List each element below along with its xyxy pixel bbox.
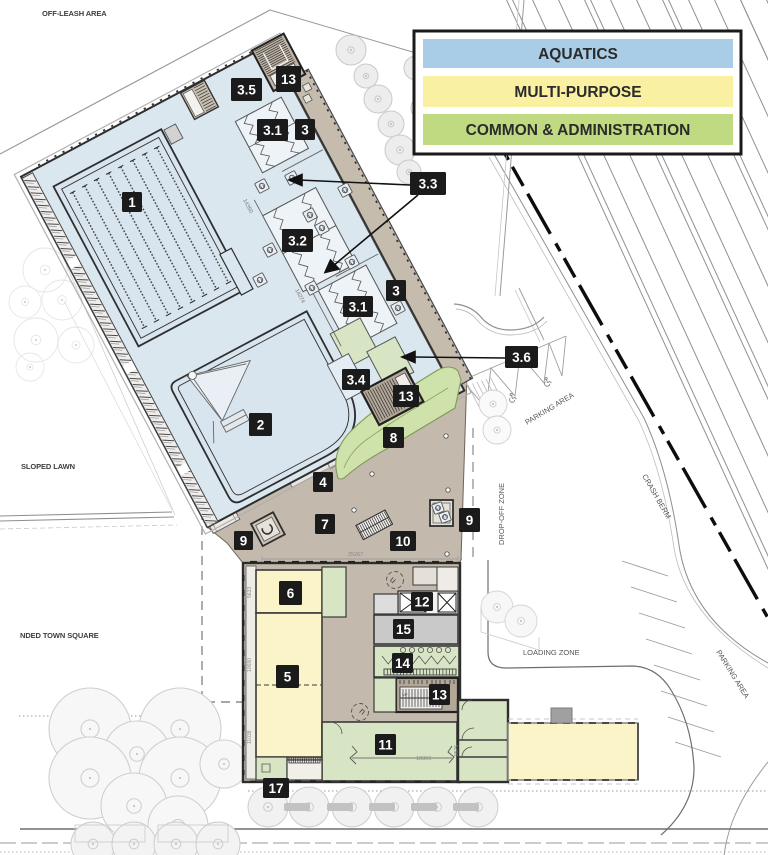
- svg-text:5: 5: [284, 669, 292, 684]
- svg-text:9: 9: [466, 513, 474, 528]
- svg-text:AQUATICS: AQUATICS: [538, 46, 618, 63]
- svg-text:8: 8: [390, 430, 398, 445]
- svg-text:1: 1: [128, 195, 136, 210]
- svg-text:12: 12: [414, 594, 429, 609]
- svg-text:17: 17: [268, 781, 283, 796]
- svg-text:10680: 10680: [247, 658, 253, 672]
- svg-text:14: 14: [395, 656, 411, 671]
- svg-text:13: 13: [398, 389, 414, 404]
- svg-text:OFF-LEASH AREA: OFF-LEASH AREA: [42, 9, 107, 18]
- svg-text:13: 13: [281, 72, 297, 87]
- svg-text:LOADING ZONE: LOADING ZONE: [523, 648, 580, 657]
- svg-text:15: 15: [396, 622, 412, 637]
- svg-text:MULTI-PURPOSE: MULTI-PURPOSE: [514, 84, 641, 101]
- svg-text:3.6: 3.6: [512, 350, 531, 365]
- svg-text:3: 3: [392, 283, 400, 298]
- svg-text:3: 3: [301, 122, 309, 137]
- svg-text:3.3: 3.3: [419, 176, 438, 191]
- svg-text:25267: 25267: [348, 552, 363, 558]
- svg-text:11: 11: [378, 737, 393, 752]
- svg-text:UP: UP: [402, 692, 408, 697]
- svg-text:DROP-OFF ZONE: DROP-OFF ZONE: [497, 483, 506, 545]
- svg-text:3.1: 3.1: [349, 299, 368, 314]
- svg-text:11038: 11038: [247, 730, 253, 744]
- svg-text:SLOPED LAWN: SLOPED LAWN: [21, 462, 75, 471]
- svg-text:13: 13: [432, 687, 448, 702]
- svg-text:9575: 9575: [454, 745, 460, 756]
- svg-text:3.4: 3.4: [347, 372, 366, 387]
- svg-text:3.5: 3.5: [237, 82, 256, 97]
- svg-text:5633: 5633: [247, 587, 253, 598]
- svg-text:10366: 10366: [416, 756, 431, 762]
- svg-text:6: 6: [287, 586, 295, 601]
- svg-text:COMMON & ADMINISTRATION: COMMON & ADMINISTRATION: [466, 122, 691, 139]
- svg-text:7: 7: [321, 517, 329, 532]
- svg-text:10: 10: [395, 534, 410, 549]
- svg-text:9: 9: [240, 533, 248, 548]
- svg-text:NDED TOWN SQUARE: NDED TOWN SQUARE: [20, 631, 99, 640]
- svg-text:2: 2: [257, 417, 265, 432]
- svg-text:4: 4: [319, 475, 327, 490]
- svg-text:3.1: 3.1: [263, 123, 282, 138]
- svg-text:3.2: 3.2: [288, 233, 307, 248]
